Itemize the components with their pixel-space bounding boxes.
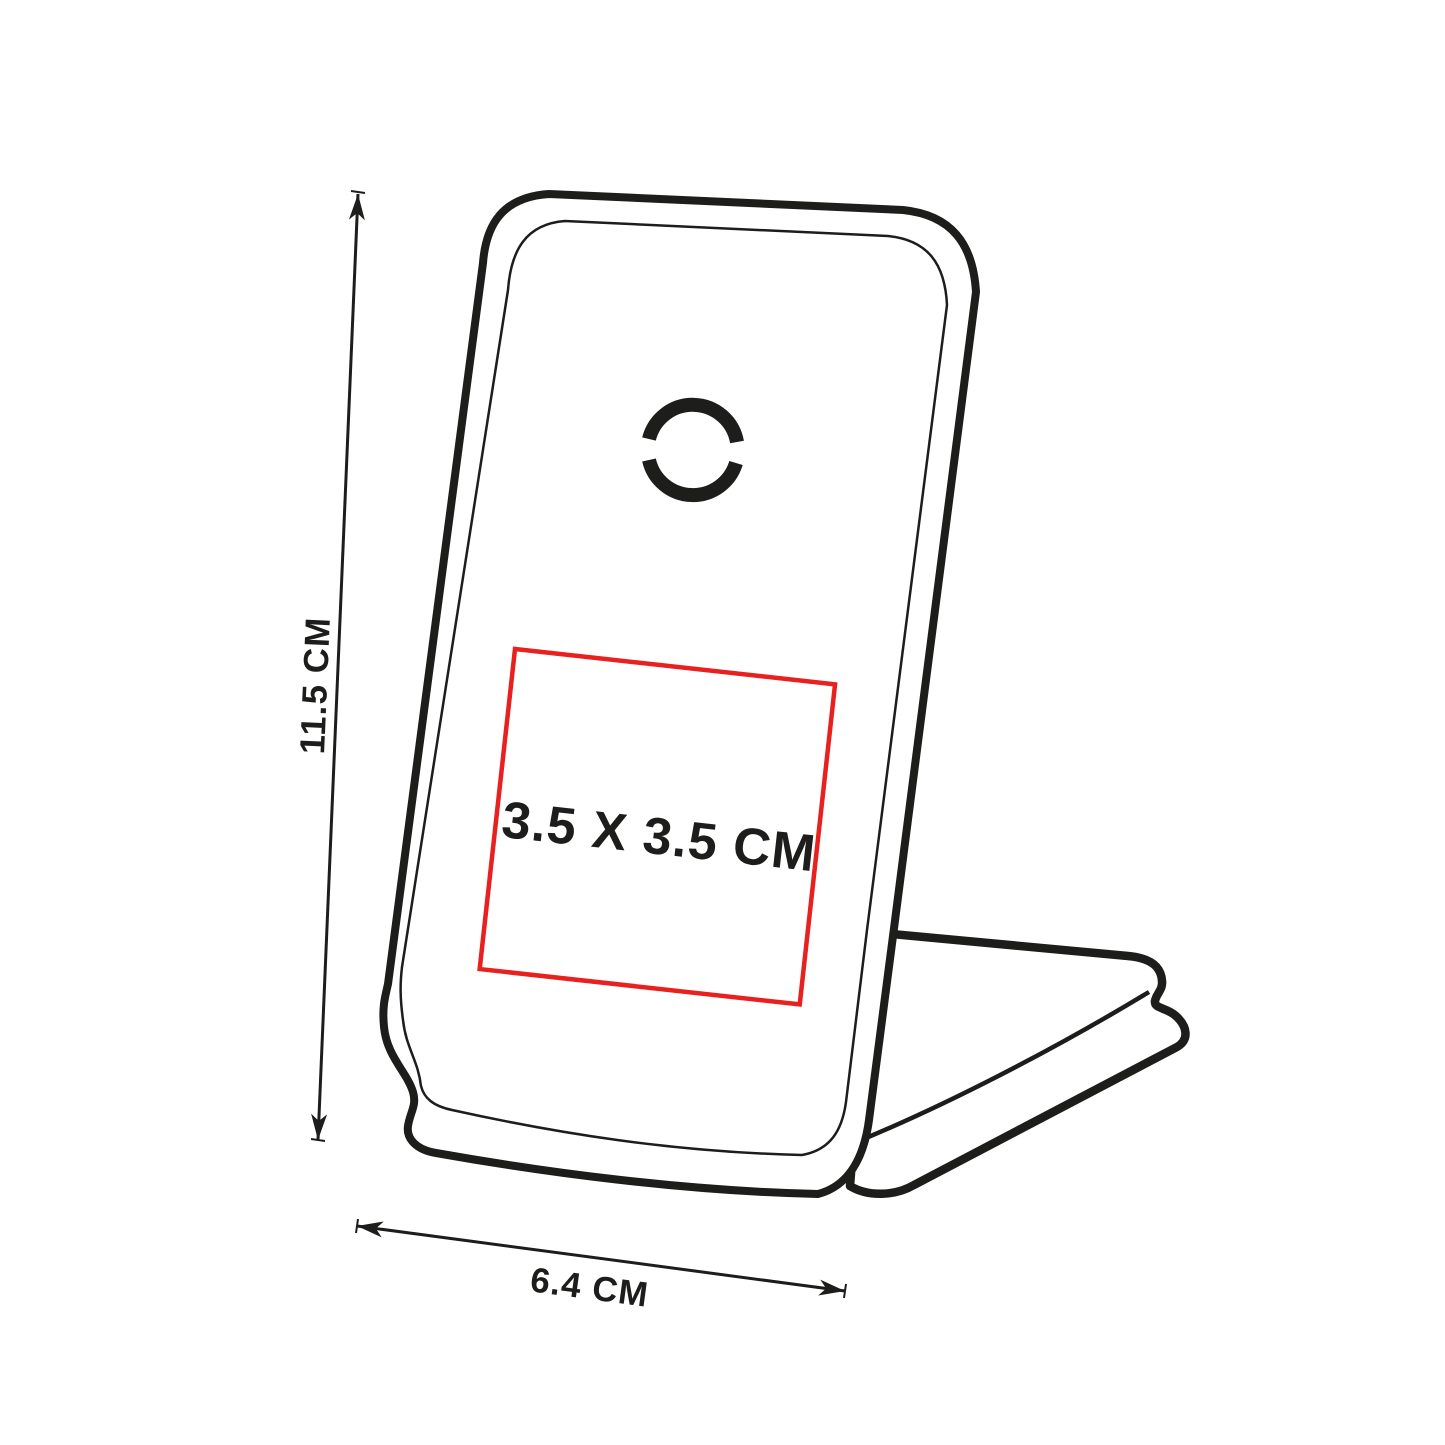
- height-label: 11.5 CM: [293, 616, 338, 755]
- width-dimension-right-tick: [844, 1284, 846, 1298]
- stand-base-plate: [850, 932, 1186, 1194]
- diagram-canvas: 3.5 X 3.5 CM 11.5 CM 6.4 CM: [0, 0, 1445, 1445]
- stand-base-outline: [850, 932, 1186, 1194]
- height-dimension: 11.5 CM: [293, 191, 365, 1141]
- width-label: 6.4 CM: [528, 1260, 651, 1314]
- height-dimension-bottom-tick: [311, 1139, 325, 1141]
- height-dimension-top-tick: [351, 191, 365, 193]
- product-dimension-diagram: 3.5 X 3.5 CM 11.5 CM 6.4 CM: [0, 0, 1445, 1445]
- width-dimension-left-tick: [356, 1219, 358, 1233]
- width-dimension: 6.4 CM: [356, 1219, 846, 1315]
